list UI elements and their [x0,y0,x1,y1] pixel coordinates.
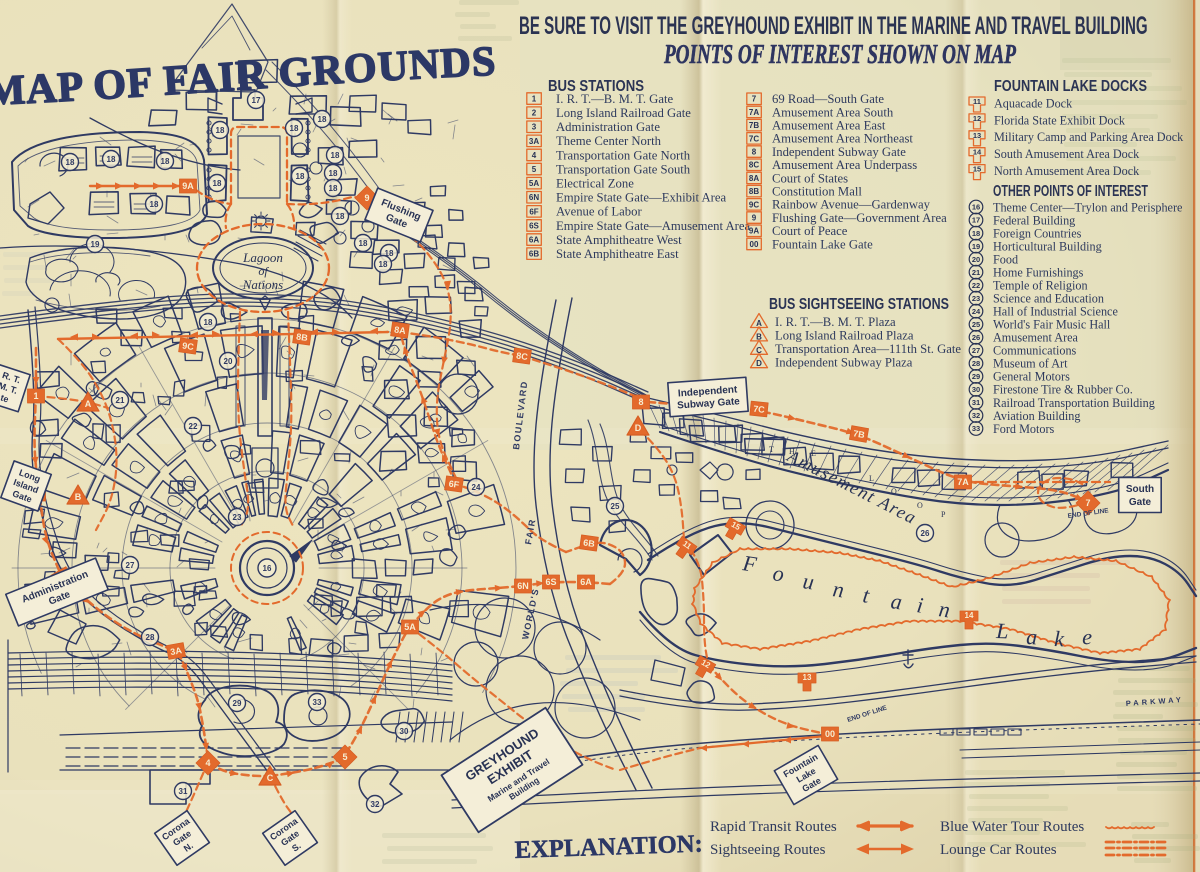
svg-text:18: 18 [107,155,116,164]
svg-text:18: 18 [331,151,340,160]
svg-text:6S: 6S [529,221,539,230]
svg-text:18: 18 [329,169,338,178]
svg-text:7C: 7C [749,134,759,143]
svg-text:18: 18 [379,260,388,269]
svg-text:7: 7 [1085,498,1090,508]
svg-text:A: A [85,399,92,409]
svg-text:4: 4 [205,758,210,768]
svg-text:8C: 8C [749,161,759,170]
svg-text:8A: 8A [394,324,407,336]
svg-text:6S: 6S [545,577,556,587]
svg-text:18: 18 [150,200,159,209]
svg-text:27: 27 [972,346,980,355]
svg-text:Aquacade Dock: Aquacade Dock [994,96,1073,110]
svg-text:Foreign Countries: Foreign Countries [993,226,1082,240]
svg-text:11: 11 [973,97,981,106]
svg-text:9A: 9A [182,181,194,191]
svg-text:18: 18 [336,212,345,221]
svg-text:31: 31 [179,787,188,796]
svg-text:13: 13 [973,131,981,140]
svg-text:18: 18 [161,157,170,166]
svg-text:Sightseeing Routes: Sightseeing Routes [710,842,826,858]
svg-text:00: 00 [825,729,835,739]
svg-text:Empire State Gate—Exhibit Area: Empire State Gate—Exhibit Area [556,191,727,205]
svg-text:World's Fair Music Hall: World's Fair Music Hall [993,318,1111,332]
svg-text:Communications: Communications [993,344,1077,358]
svg-text:16: 16 [972,203,980,212]
svg-text:7A: 7A [957,477,969,487]
svg-text:25: 25 [972,320,980,329]
svg-text:Court of States: Court of States [772,171,848,185]
svg-text:9A: 9A [749,227,759,236]
svg-text:Amusement Area: Amusement Area [993,331,1079,345]
svg-text:17: 17 [972,216,980,225]
svg-text:7: 7 [752,95,757,104]
svg-text:Independent Subway Plaza: Independent Subway Plaza [775,355,913,369]
svg-text:State Amphitheatre West: State Amphitheatre West [556,233,682,247]
svg-text:POINTS OF INTEREST SHOWN ON MA: POINTS OF INTEREST SHOWN ON MAP [663,39,1016,69]
svg-text:18: 18 [204,318,213,327]
svg-text:12: 12 [973,114,981,123]
svg-text:20: 20 [224,357,233,366]
svg-text:8: 8 [752,148,757,157]
svg-text:Amusement Area Underpass: Amusement Area Underpass [772,158,917,172]
svg-text:31: 31 [972,398,980,407]
svg-text:L: L [869,474,874,483]
svg-text:Rapid Transit Routes: Rapid Transit Routes [710,819,837,835]
svg-text:Museum of Art: Museum of Art [993,357,1068,371]
svg-text:8: 8 [638,397,643,407]
svg-text:B: B [75,492,82,502]
svg-text:Empire State Gate—Amusement Ar: Empire State Gate—Amusement Area [556,219,750,233]
svg-text:6A: 6A [529,236,539,245]
svg-text:Gate: Gate [1129,497,1152,508]
svg-text:Amusement Area Northeast: Amusement Area Northeast [772,132,913,146]
svg-text:23: 23 [972,294,980,303]
svg-text:L: L [995,618,1009,643]
svg-text:9C: 9C [749,200,759,209]
svg-text:6B: 6B [529,250,539,259]
svg-text:6N: 6N [517,581,529,591]
svg-text:5: 5 [342,752,347,762]
svg-text:South Amusement Area Dock: South Amusement Area Dock [994,147,1140,161]
svg-text:9: 9 [364,193,369,203]
svg-text:5A: 5A [529,179,539,188]
svg-text:9: 9 [752,214,757,223]
svg-text:32: 32 [371,800,380,809]
svg-text:20: 20 [972,255,980,264]
svg-text:Long Island Railroad Gate: Long Island Railroad Gate [556,106,691,120]
svg-text:21: 21 [116,396,125,405]
svg-text:18: 18 [972,229,980,238]
svg-text:BE SURE TO VISIT THE GREYHOUND: BE SURE TO VISIT THE GREYHOUND EXHIBIT I… [519,12,1148,40]
svg-text:Florida State Exhibit Dock: Florida State Exhibit Dock [994,113,1126,127]
svg-text:6F: 6F [529,207,538,216]
svg-text:Blue Water Tour Routes: Blue Water Tour Routes [940,819,1084,835]
svg-text:a: a [1026,624,1038,649]
svg-text:29: 29 [972,372,980,381]
svg-text:22: 22 [972,281,980,290]
svg-text:33: 33 [972,424,980,433]
svg-text:North Amusement Area Dock: North Amusement Area Dock [994,164,1140,178]
svg-text:7A: 7A [749,108,759,117]
svg-text:Lagoon: Lagoon [242,250,283,265]
svg-text:32: 32 [972,411,980,420]
svg-text:I. R. T.—B. M. T. Gate: I. R. T.—B. M. T. Gate [556,92,673,106]
svg-text:27: 27 [126,561,135,570]
svg-text:23: 23 [233,513,242,522]
svg-text:Theme Center North: Theme Center North [556,134,662,148]
svg-text:26: 26 [921,529,930,538]
svg-text:O: O [917,501,923,510]
svg-text:18: 18 [359,239,368,248]
svg-text:8B: 8B [749,187,759,196]
svg-text:Aviation Building: Aviation Building [993,409,1080,423]
svg-text:28: 28 [146,633,155,642]
svg-text:3A: 3A [529,137,539,146]
svg-text:6A: 6A [580,577,592,587]
svg-text:T: T [769,445,774,454]
svg-text:Hall of Industrial Science: Hall of Industrial Science [993,305,1118,319]
svg-text:8C: 8C [516,350,529,362]
svg-text:7C: 7C [753,404,766,415]
svg-text:1: 1 [33,391,38,401]
svg-text:5A: 5A [404,622,416,632]
svg-text:8A: 8A [749,174,759,183]
svg-text:Amusement Area South: Amusement Area South [772,105,894,119]
svg-text:3A: 3A [169,645,183,657]
svg-text:6F: 6F [448,479,460,490]
svg-text:3: 3 [532,123,537,132]
svg-text:Lounge Car Routes: Lounge Car Routes [940,842,1057,858]
svg-text:Military Camp and Parking Area: Military Camp and Parking Area Dock [994,130,1184,144]
svg-text:8B: 8B [296,331,309,343]
svg-text:9C: 9C [182,340,195,352]
svg-text:P: P [941,510,946,519]
svg-text:19: 19 [91,240,100,249]
svg-text:Nations: Nations [242,277,283,292]
svg-text:28: 28 [972,359,980,368]
svg-text:14: 14 [973,148,982,157]
svg-text:E: E [811,449,816,458]
svg-text:69 Road—South Gate: 69 Road—South Gate [772,92,884,106]
svg-text:Transportation Gate North: Transportation Gate North [556,148,691,162]
svg-text:16: 16 [263,564,272,573]
svg-text:Theme Center—Trylon and Perisp: Theme Center—Trylon and Perisphere [993,200,1182,214]
svg-text:State Amphitheatre East: State Amphitheatre East [556,247,679,261]
svg-text:18: 18 [296,172,305,181]
svg-text:Horticultural Building: Horticultural Building [993,239,1102,253]
svg-text:30: 30 [400,727,409,736]
svg-text:Flushing Gate—Government Area: Flushing Gate—Government Area [772,211,947,225]
svg-text:Electrical Zone: Electrical Zone [556,177,634,191]
svg-text:18: 18 [66,158,75,167]
svg-text:Court of Peace: Court of Peace [772,224,848,238]
svg-text:Independent Subway Gate: Independent Subway Gate [772,145,906,159]
svg-text:4: 4 [532,151,537,160]
svg-text:Federal Building: Federal Building [993,213,1075,227]
svg-text:Transportation Gate South: Transportation Gate South [556,162,691,176]
svg-text:00: 00 [750,240,759,249]
svg-text:Rainbow Avenue—Gardenway: Rainbow Avenue—Gardenway [772,198,931,212]
svg-text:15: 15 [973,165,981,174]
svg-text:Firestone Tire & Rubber Co.: Firestone Tire & Rubber Co. [993,383,1133,397]
svg-text:18: 18 [290,124,299,133]
svg-text:Science and Education: Science and Education [993,292,1104,306]
svg-text:Fountain Lake Gate: Fountain Lake Gate [772,237,873,251]
svg-text:Administration Gate: Administration Gate [556,120,660,134]
svg-text:Railroad Transportation Buildi: Railroad Transportation Building [993,396,1155,410]
svg-text:South: South [1126,484,1154,495]
svg-text:21: 21 [972,268,980,277]
svg-text:5: 5 [532,165,537,174]
svg-text:26: 26 [972,333,980,342]
svg-text:e: e [1082,624,1093,649]
svg-text:2: 2 [532,109,537,118]
svg-text:7B: 7B [852,428,866,440]
svg-text:Constitution Mall: Constitution Mall [772,185,862,199]
svg-text:OTHER POINTS OF INTEREST: OTHER POINTS OF INTEREST [993,183,1148,200]
svg-text:C: C [267,773,274,783]
svg-text:29: 29 [233,699,242,708]
svg-text:Food: Food [993,252,1018,266]
svg-text:Temple of Religion: Temple of Religion [993,279,1088,293]
svg-text:D: D [756,359,762,368]
svg-text:22: 22 [189,422,198,431]
svg-text:O: O [891,487,897,496]
svg-text:I. R. T.—B. M. T. Plaza: I. R. T.—B. M. T. Plaza [775,315,896,329]
svg-text:Transportation Area—111th St.: Transportation Area—111th St. Gate [775,342,961,356]
svg-text:14: 14 [965,611,974,620]
svg-text:7B: 7B [749,121,759,130]
svg-text:FOUNTAIN LAKE DOCKS: FOUNTAIN LAKE DOCKS [994,78,1147,95]
svg-text:Long Island Railroad Plaza: Long Island Railroad Plaza [775,329,914,343]
svg-text:18: 18 [318,115,327,124]
svg-text:Avenue of Labor: Avenue of Labor [556,205,642,219]
svg-text:Home Furnishings: Home Furnishings [993,265,1084,279]
svg-text:D: D [635,423,642,433]
svg-text:24: 24 [472,483,481,492]
svg-text:Ford Motors: Ford Motors [993,422,1055,436]
svg-text:13: 13 [803,673,812,682]
svg-text:General Motors: General Motors [993,370,1070,384]
svg-text:18: 18 [213,179,222,188]
svg-text:H: H [789,447,795,456]
svg-text:25: 25 [611,502,620,511]
svg-text:6N: 6N [529,193,539,202]
svg-text:24: 24 [972,307,981,316]
svg-text:18: 18 [329,184,338,193]
svg-text:33: 33 [313,698,322,707]
svg-text:6B: 6B [583,537,596,549]
svg-text:18: 18 [216,126,225,135]
svg-text:30: 30 [972,385,980,394]
svg-text:1: 1 [532,95,537,104]
svg-text:19: 19 [972,242,980,251]
svg-text:BUS SIGHTSEEING STATIONS: BUS SIGHTSEEING STATIONS [769,296,949,313]
svg-text:Amusement Area East: Amusement Area East [772,119,886,133]
